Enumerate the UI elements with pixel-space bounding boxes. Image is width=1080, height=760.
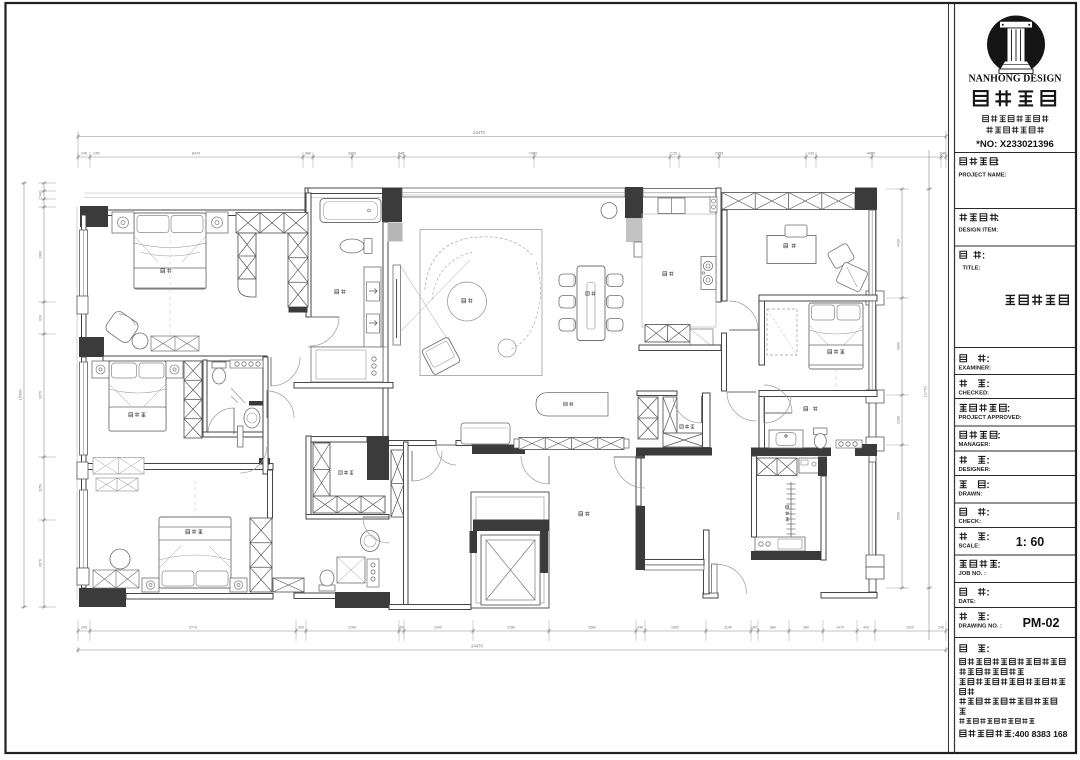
svg-text::: : — [1007, 404, 1010, 415]
svg-text::: : — [986, 588, 989, 599]
svg-text:4430: 4430 — [897, 239, 901, 247]
svg-text::: : — [982, 251, 985, 262]
svg-text:4490: 4490 — [867, 152, 875, 156]
svg-text:1650: 1650 — [671, 626, 679, 630]
svg-text:SCALE:: SCALE: — [959, 544, 981, 550]
svg-text:PROJECT NAME:: PROJECT NAME: — [959, 173, 1007, 179]
svg-text:DESIGN ITEM:: DESIGN ITEM: — [959, 228, 999, 234]
svg-text:240: 240 — [940, 152, 946, 156]
svg-text:NANHONG DESIGN: NANHONG DESIGN — [968, 74, 1062, 85]
svg-text:1470: 1470 — [836, 626, 844, 630]
svg-text::400 8383 168: :400 8383 168 — [1012, 729, 1068, 739]
svg-text:15000: 15000 — [18, 389, 23, 401]
svg-text:3130: 3130 — [348, 152, 356, 156]
svg-text:420: 420 — [863, 626, 869, 630]
svg-text:PROJECT APPROVED:: PROJECT APPROVED: — [959, 415, 1022, 421]
svg-text:245: 245 — [93, 152, 99, 156]
svg-text:960: 960 — [803, 626, 809, 630]
svg-text:2580: 2580 — [588, 626, 596, 630]
svg-text::: : — [986, 456, 989, 467]
svg-text::: : — [986, 354, 989, 365]
svg-text:3800: 3800 — [897, 342, 901, 350]
svg-text:JOB NO. :: JOB NO. : — [959, 571, 986, 577]
svg-text::: : — [986, 532, 989, 543]
svg-text:24470: 24470 — [471, 644, 483, 649]
svg-text:1140: 1140 — [724, 626, 732, 630]
svg-text::: : — [986, 480, 989, 491]
svg-text:CHECK:: CHECK: — [959, 519, 982, 525]
svg-text:CHECKED:: CHECKED: — [959, 391, 990, 397]
svg-text::: : — [997, 560, 1000, 571]
svg-text:24470: 24470 — [473, 130, 485, 135]
svg-text:1960: 1960 — [39, 251, 43, 259]
svg-text:740: 740 — [39, 192, 43, 198]
svg-text:2000: 2000 — [434, 626, 442, 630]
svg-text:5770: 5770 — [189, 626, 197, 630]
svg-text:240: 240 — [81, 626, 87, 630]
svg-text:5960: 5960 — [897, 512, 901, 520]
svg-text::: : — [986, 612, 989, 623]
svg-text:EXAMINER:: EXAMINER: — [959, 366, 992, 372]
svg-text:2180: 2180 — [897, 416, 901, 424]
svg-text::: : — [986, 644, 989, 655]
svg-text::: : — [996, 157, 999, 168]
svg-text:300: 300 — [298, 626, 304, 630]
svg-text:DRAWN:: DRAWN: — [959, 492, 983, 498]
svg-text:DESIGNER:: DESIGNER: — [959, 467, 991, 473]
svg-text:TITLE:: TITLE: — [963, 266, 981, 272]
svg-text:240: 240 — [637, 626, 643, 630]
svg-text:7960: 7960 — [529, 152, 537, 156]
svg-text:240: 240 — [938, 626, 944, 630]
svg-text:610: 610 — [39, 315, 43, 321]
svg-text::: : — [996, 213, 999, 224]
svg-text:2100: 2100 — [348, 626, 356, 630]
svg-text::: : — [997, 431, 1000, 442]
svg-text:180: 180 — [751, 626, 757, 630]
svg-text:12770: 12770 — [923, 386, 928, 398]
svg-text:*NO: X233021396: *NO: X233021396 — [976, 139, 1054, 150]
svg-text:160: 160 — [398, 626, 404, 630]
svg-text:3670: 3670 — [39, 391, 43, 399]
svg-text:2330: 2330 — [715, 152, 723, 156]
svg-text:240: 240 — [81, 152, 87, 156]
svg-text:1920: 1920 — [906, 626, 914, 630]
svg-text:8470: 8470 — [192, 152, 200, 156]
svg-text:190: 190 — [808, 152, 814, 156]
svg-text:240: 240 — [398, 152, 404, 156]
svg-text:DRAWING NO. :: DRAWING NO. : — [959, 624, 1003, 630]
svg-text::: : — [986, 508, 989, 519]
svg-text:2670: 2670 — [39, 559, 43, 567]
svg-text:1: 60: 1: 60 — [1016, 535, 1045, 549]
svg-text:880: 880 — [770, 626, 776, 630]
svg-text:120: 120 — [671, 152, 677, 156]
svg-text::: : — [986, 379, 989, 390]
svg-text:MANAGER:: MANAGER: — [959, 442, 991, 448]
svg-text:DATE:: DATE: — [959, 599, 976, 605]
svg-text:PM-02: PM-02 — [1023, 616, 1060, 630]
svg-text:2280: 2280 — [507, 626, 515, 630]
svg-text:980: 980 — [305, 152, 311, 156]
svg-text:1150: 1150 — [39, 484, 43, 492]
